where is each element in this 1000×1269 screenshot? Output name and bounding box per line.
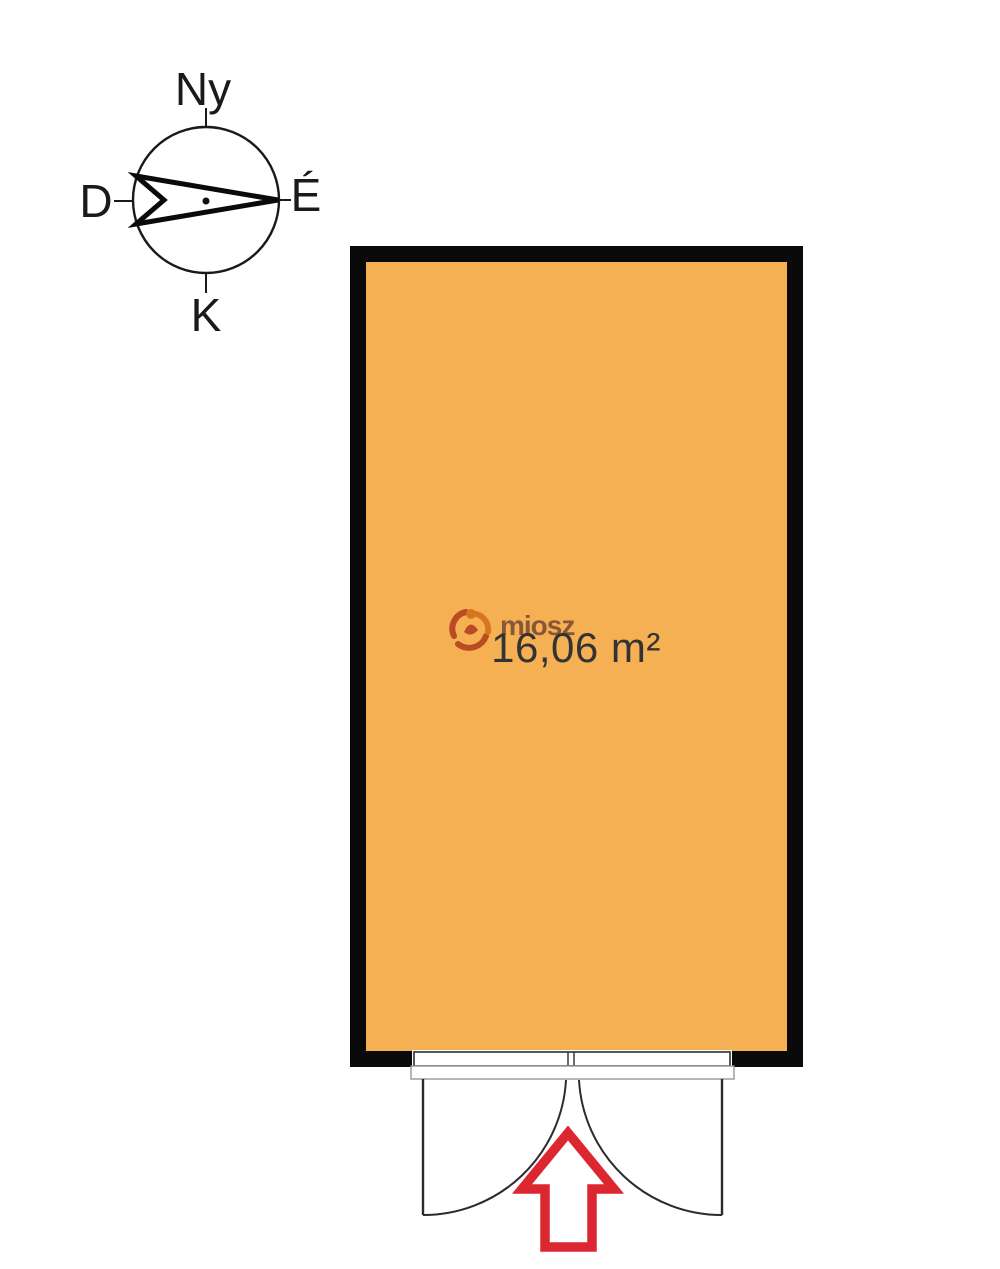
- compass-label-e: É: [286, 172, 326, 218]
- compass-center-dot: [203, 198, 210, 205]
- compass-label-k: K: [184, 292, 228, 338]
- compass-label-d: D: [74, 178, 118, 224]
- floorplan-canvas: Ny É D K miosz 16,06 m²: [0, 0, 1000, 1269]
- compass-rose: [114, 108, 291, 293]
- door-threshold-inner: [414, 1052, 730, 1066]
- door-swing-arc-right: [579, 1080, 722, 1215]
- compass-label-ny: Ny: [168, 66, 238, 112]
- room-area-label: 16,06 m²: [461, 624, 691, 672]
- entrance-arrow-icon: [522, 1133, 614, 1247]
- door-threshold-outer: [411, 1066, 734, 1079]
